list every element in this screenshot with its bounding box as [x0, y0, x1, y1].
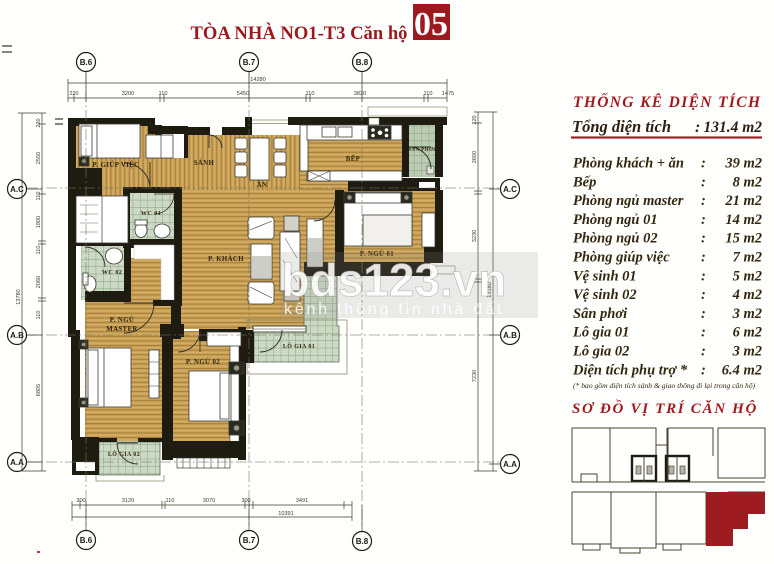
svg-text::: :	[701, 156, 706, 172]
svg-text:4 m2: 4 m2	[732, 287, 762, 303]
svg-text:B.6: B.6	[80, 536, 93, 545]
svg-text:7 m2: 7 m2	[733, 250, 762, 266]
svg-text:Sân phơi: Sân phơi	[573, 306, 627, 322]
svg-text:P. GIÚP VIỆC: P. GIÚP VIỆC	[93, 161, 140, 169]
svg-text:2060: 2060	[36, 276, 42, 288]
svg-text:Phòng khách + ăn: Phòng khách + ăn	[573, 156, 684, 172]
svg-text:Vệ sinh 01: Vệ sinh 01	[573, 268, 637, 284]
svg-text:WC 01: WC 01	[141, 210, 161, 217]
svg-text:220: 220	[36, 118, 42, 127]
svg-text:B.8: B.8	[356, 537, 369, 546]
svg-text:131.4 m2: 131.4 m2	[703, 119, 762, 136]
svg-text:Phòng giúp việc: Phòng giúp việc	[573, 250, 670, 266]
svg-text:A.C: A.C	[503, 185, 517, 194]
svg-text:B.8: B.8	[356, 58, 369, 67]
svg-text:B.6: B.6	[80, 58, 93, 67]
svg-text:kênh thông tin nhà đất: kênh thông tin nhà đất	[284, 301, 504, 318]
svg-text:Vệ sinh 02: Vệ sinh 02	[573, 287, 637, 303]
svg-text:3120: 3120	[122, 498, 134, 504]
svg-text:3820: 3820	[354, 91, 366, 97]
svg-text::: :	[701, 193, 706, 209]
svg-text:15 m2: 15 m2	[725, 231, 762, 247]
svg-text:Phòng ngủ 01: Phòng ngủ 01	[573, 212, 658, 228]
svg-text:B.7: B.7	[243, 536, 256, 545]
svg-text:110: 110	[424, 91, 433, 97]
svg-text::: :	[701, 250, 706, 266]
svg-text:A.A: A.A	[503, 460, 517, 469]
svg-text::: :	[701, 174, 706, 190]
svg-text::: :	[701, 268, 706, 284]
svg-text:3070: 3070	[203, 498, 215, 504]
svg-text:Diện tích phụ trợ *: Diện tích phụ trợ *	[572, 362, 688, 378]
svg-text:P. NGỦ 02: P. NGỦ 02	[186, 358, 220, 366]
svg-text:THỐNG KÊ DIỆN TÍCH: THỐNG KÊ DIỆN TÍCH	[573, 93, 761, 111]
svg-text:10391: 10391	[278, 511, 294, 517]
svg-text:21 m2: 21 m2	[724, 193, 762, 209]
svg-text:110: 110	[36, 311, 42, 320]
svg-text:6.4 m2: 6.4 m2	[722, 362, 762, 378]
svg-text:MASTER: MASTER	[106, 326, 137, 333]
svg-text:Phòng ngủ 02: Phòng ngủ 02	[573, 231, 658, 247]
svg-text:14 m2: 14 m2	[725, 212, 762, 228]
svg-text:14280: 14280	[250, 77, 266, 83]
svg-text::: :	[701, 306, 706, 322]
svg-text:7230: 7230	[472, 370, 478, 382]
svg-text:LÔ GIA 01: LÔ GIA 01	[283, 342, 315, 350]
svg-text::: :	[701, 344, 706, 360]
svg-text:Phòng ngủ master: Phòng ngủ master	[573, 193, 684, 209]
svg-text:P. NGỦ: P. NGỦ	[110, 316, 134, 324]
svg-text:1475: 1475	[442, 91, 454, 97]
svg-text:110: 110	[166, 498, 175, 504]
svg-text:3200: 3200	[122, 91, 134, 97]
svg-text:220: 220	[472, 115, 478, 124]
svg-text:A.B: A.B	[503, 331, 517, 340]
svg-text:6 m2: 6 m2	[733, 325, 762, 341]
svg-text:TÒA NHÀ NO1-T3 Căn hộ: TÒA NHÀ NO1-T3 Căn hộ	[191, 22, 408, 44]
svg-text::: :	[701, 362, 706, 378]
svg-text:1800: 1800	[36, 216, 42, 228]
svg-text:WC 02: WC 02	[102, 269, 122, 276]
svg-text:SẢNH: SẢNH	[194, 159, 215, 167]
svg-text:3491: 3491	[296, 498, 308, 504]
svg-text::: :	[701, 212, 706, 228]
svg-text:05: 05	[414, 6, 448, 43]
svg-text:B.7: B.7	[243, 58, 256, 67]
svg-text:2600: 2600	[472, 151, 478, 163]
svg-text:bds123.vn: bds123.vn	[282, 254, 507, 306]
svg-text:SÂN PHƠI: SÂN PHƠI	[408, 147, 435, 153]
svg-text:SƠ ĐỒ VỊ TRÍ CĂN HỘ: SƠ ĐỒ VỊ TRÍ CĂN HỘ	[572, 399, 758, 417]
svg-text::: :	[701, 231, 706, 247]
svg-text:2550: 2550	[36, 152, 42, 164]
svg-text:39 m2: 39 m2	[724, 156, 762, 172]
svg-text:8 m2: 8 m2	[733, 174, 762, 190]
svg-text::: :	[701, 287, 706, 303]
svg-text:Lô gia 02: Lô gia 02	[572, 344, 629, 360]
svg-text:5450: 5450	[237, 91, 249, 97]
svg-text:110: 110	[306, 91, 315, 97]
svg-text:3 m2: 3 m2	[732, 306, 762, 322]
svg-text:300: 300	[76, 498, 85, 504]
svg-text:P. KHÁCH: P. KHÁCH	[208, 255, 244, 263]
svg-text:Tổng diện tích: Tổng diện tích	[572, 117, 671, 136]
svg-text:3230: 3230	[472, 230, 478, 242]
svg-text::: :	[695, 119, 700, 136]
svg-text:LÔ GIA 02: LÔ GIA 02	[108, 450, 140, 458]
svg-text:5 m2: 5 m2	[733, 268, 762, 284]
svg-text:Bếp: Bếp	[572, 174, 596, 190]
svg-text:Lô gia 01: Lô gia 01	[572, 325, 629, 341]
svg-text:110: 110	[159, 91, 168, 97]
svg-text:(* bao gồm diện tích sảnh & gi: (* bao gồm diện tích sảnh & giao thông đ…	[573, 381, 756, 390]
svg-text:3 m2: 3 m2	[732, 344, 762, 360]
svg-text:BẾP: BẾP	[346, 155, 360, 163]
svg-text:220: 220	[69, 91, 78, 97]
svg-text::: :	[701, 325, 706, 341]
svg-text:6805: 6805	[36, 384, 42, 396]
svg-text:300: 300	[241, 498, 250, 504]
svg-text:13780: 13780	[16, 289, 22, 305]
svg-text:110: 110	[36, 192, 42, 201]
svg-text:110: 110	[36, 246, 42, 255]
